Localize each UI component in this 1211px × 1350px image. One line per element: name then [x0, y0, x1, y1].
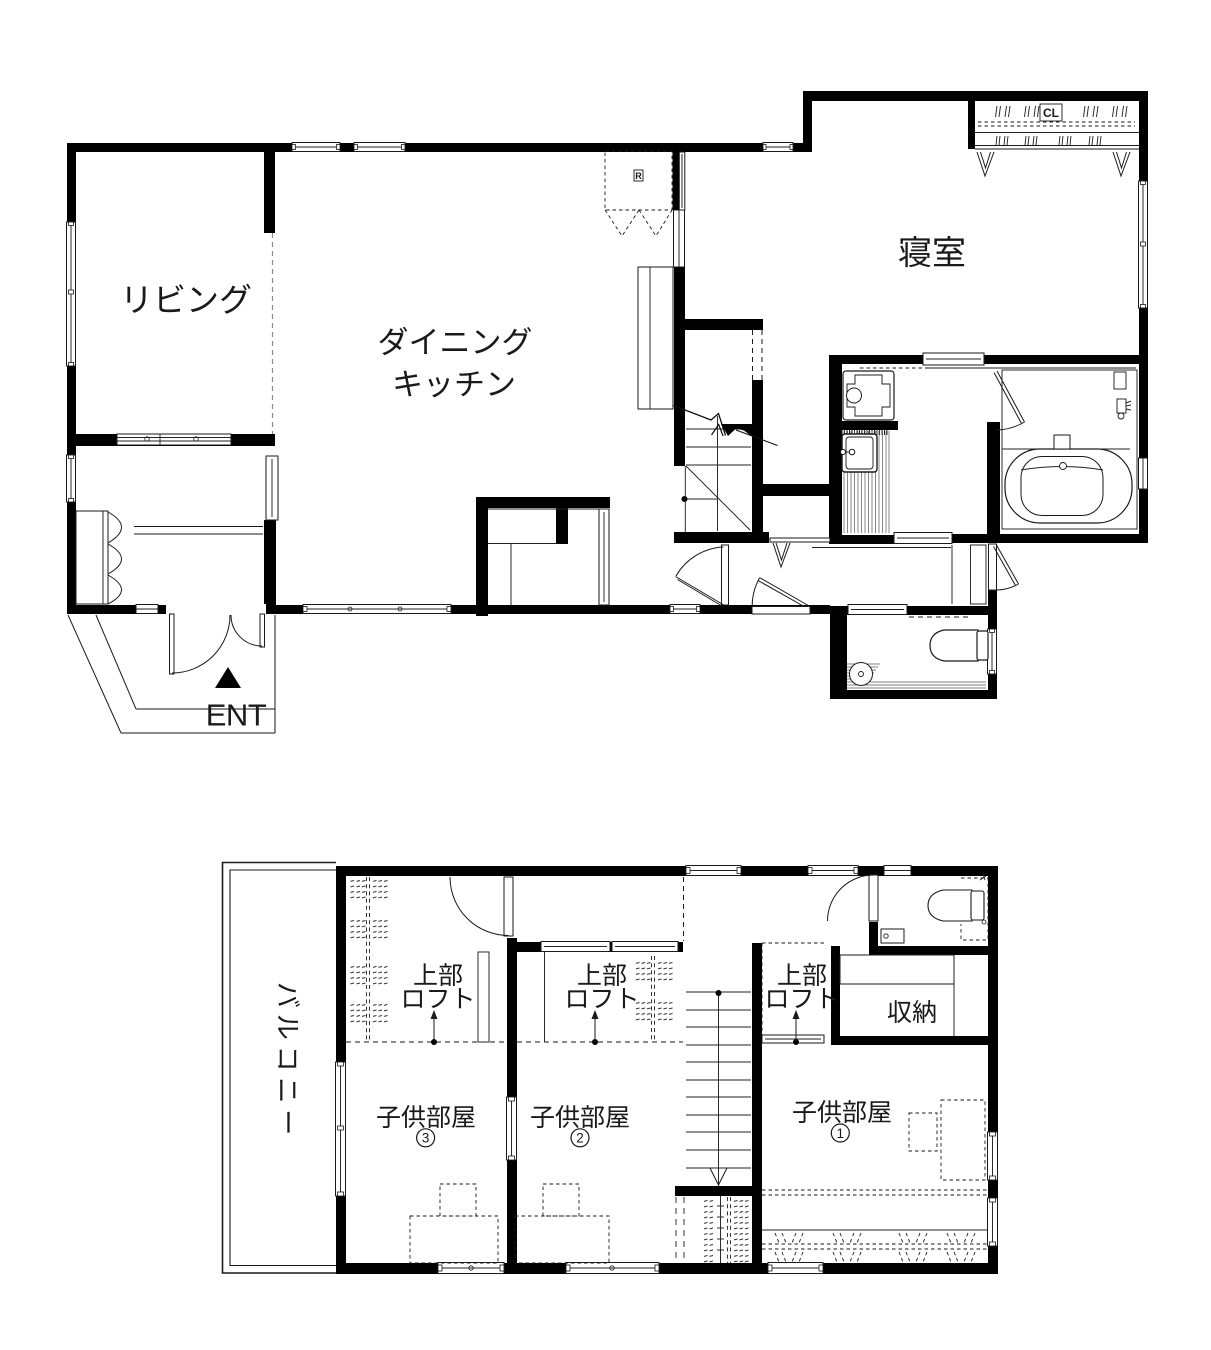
svg-text:3: 3: [422, 1131, 430, 1146]
svg-text:1: 1: [837, 1126, 845, 1141]
svg-text:2: 2: [576, 1131, 584, 1146]
svg-text:CL: CL: [1043, 106, 1059, 120]
svg-text:R: R: [635, 171, 642, 181]
svg-text:ENT: ENT: [206, 698, 267, 733]
